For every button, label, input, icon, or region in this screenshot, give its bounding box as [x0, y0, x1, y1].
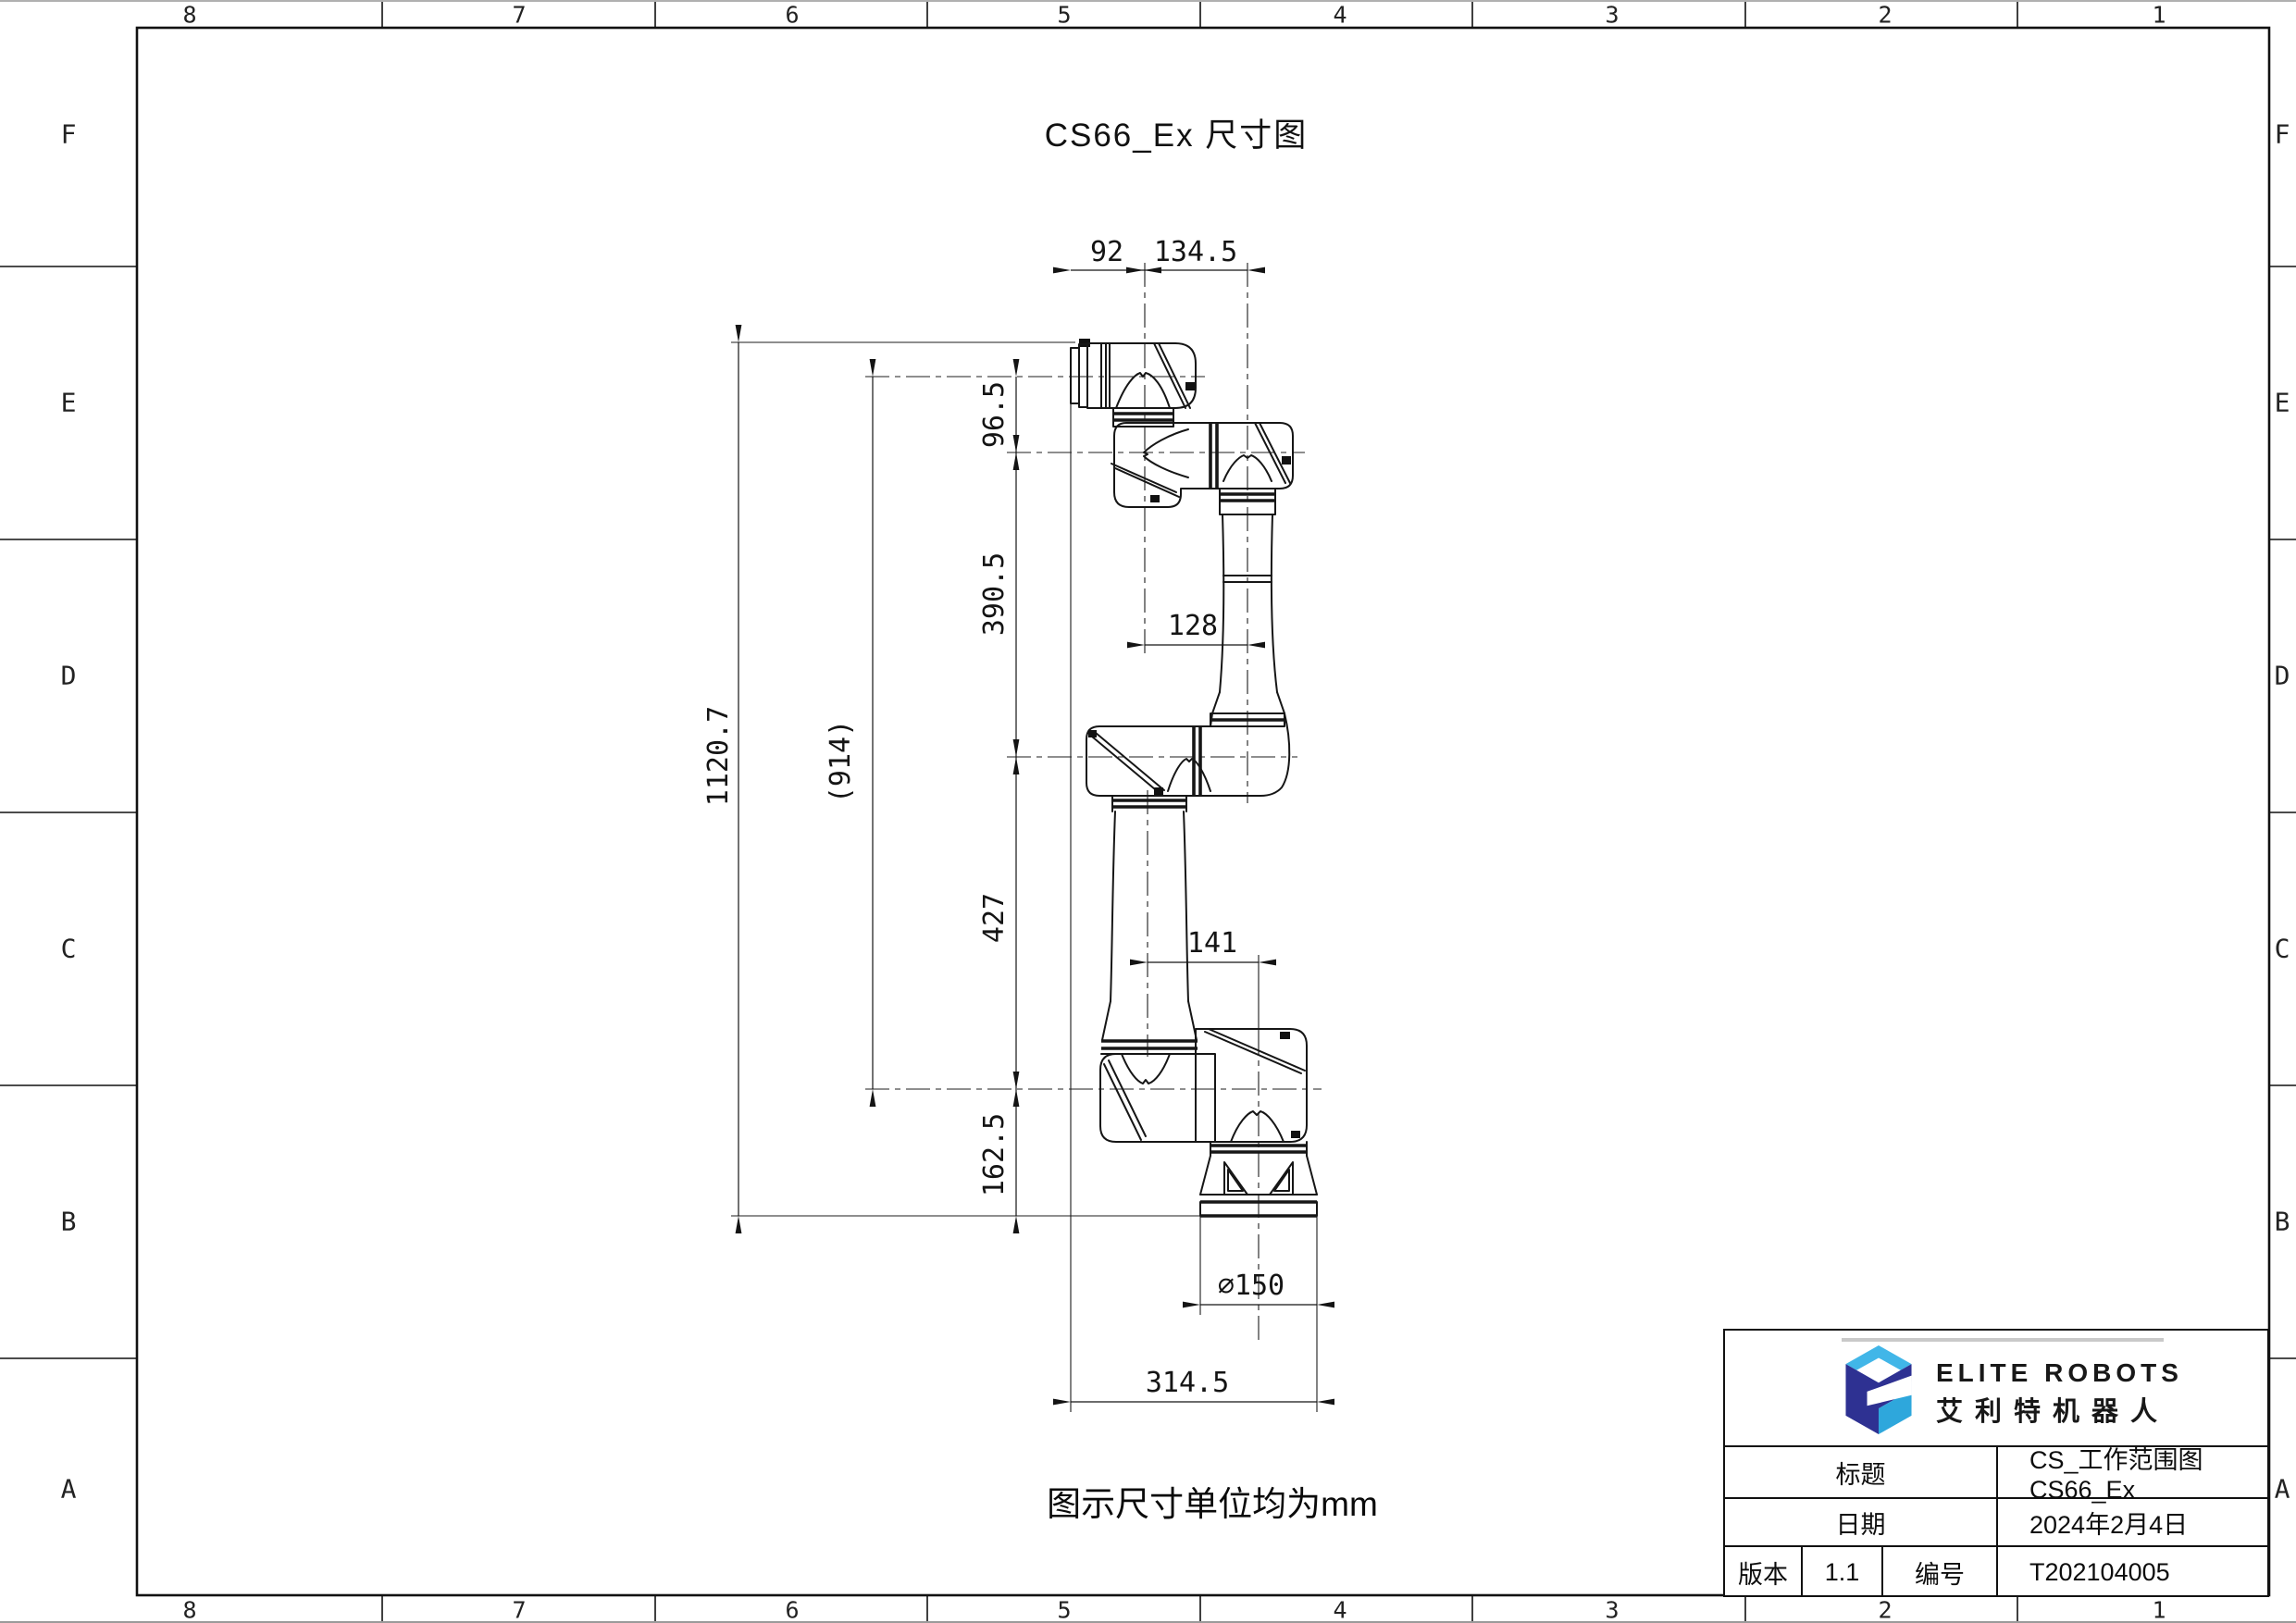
- brand-name-cn: 艾利特机器人: [1936, 1390, 2169, 1429]
- zone-col-top-4: 4: [1333, 2, 1347, 29]
- title-block-logo-row: ELITE ROBOTS 艾利特机器人: [1725, 1331, 2267, 1447]
- dim-427: 427: [978, 893, 1011, 943]
- page-title: CS66_Ex 尺寸图: [899, 109, 1454, 156]
- zone-col-top-8: 8: [182, 2, 196, 29]
- title-block: ELITE ROBOTS 艾利特机器人 标题 CS_工作范围图 CS66_Ex …: [1723, 1329, 2269, 1597]
- brand-name-en: ELITE ROBOTS: [1936, 1358, 2183, 1388]
- dim-92: 92: [1090, 236, 1123, 268]
- zone-row-left-a: A: [61, 1474, 77, 1505]
- dim-162-5: 162.5: [978, 1113, 1011, 1196]
- number-label: 编号: [1883, 1547, 1998, 1597]
- center-lines: [865, 263, 1322, 1342]
- dim-1120-7: 1120.7: [702, 706, 735, 806]
- elite-robots-logo-icon: [1843, 1345, 1914, 1434]
- zone-col-top-1: 1: [2152, 2, 2166, 29]
- zone-row-right-b: B: [2275, 1207, 2290, 1237]
- zone-row-right-a: A: [2275, 1474, 2290, 1505]
- zone-col-bottom-4: 4: [1333, 1597, 1347, 1623]
- date-row: 日期 2024年2月4日: [1725, 1499, 2267, 1547]
- zone-col-top-2: 2: [1878, 2, 1892, 29]
- dim-128: 128: [1168, 610, 1218, 642]
- zone-row-right-d: D: [2275, 661, 2290, 691]
- version-label: 版本: [1725, 1547, 1803, 1597]
- version-number-row: 版本 1.1 编号 T202104005: [1725, 1547, 2267, 1597]
- dim-141: 141: [1187, 927, 1237, 960]
- title-row: 标题 CS_工作范围图 CS66_Ex: [1725, 1447, 2267, 1499]
- zone-row-right-f: F: [2275, 119, 2290, 150]
- version-value: 1.1: [1803, 1547, 1883, 1597]
- dim-diameter-150: ⌀150: [1218, 1270, 1285, 1302]
- zone-row-left-f: F: [61, 119, 77, 150]
- zone-col-bottom-6: 6: [785, 1597, 799, 1623]
- zone-col-top-5: 5: [1057, 2, 1071, 29]
- units-note: 图示尺寸单位均为mm: [935, 1476, 1490, 1526]
- dimension-lines: [738, 270, 1317, 1402]
- dimension-labels: 92 134.5 128 141 ⌀150 314.5 1120.7 (914)…: [702, 236, 1285, 1399]
- dim-390-5: 390.5: [978, 552, 1011, 636]
- zone-row-left-e: E: [61, 388, 77, 418]
- zone-col-bottom-5: 5: [1057, 1597, 1071, 1623]
- title-value: CS_工作范围图 CS66_Ex: [1998, 1447, 2267, 1497]
- title-label: 标题: [1725, 1447, 1998, 1497]
- date-value: 2024年2月4日: [1998, 1499, 2267, 1545]
- zone-col-top-6: 6: [785, 2, 799, 29]
- zone-row-left-d: D: [61, 661, 77, 691]
- zone-col-bottom-7: 7: [512, 1597, 526, 1623]
- zone-col-bottom-8: 8: [182, 1597, 196, 1623]
- drawing-sheet: 92 134.5 128 141 ⌀150 314.5 1120.7 (914)…: [0, 0, 2296, 1623]
- zone-col-top-3: 3: [1605, 2, 1619, 29]
- zone-col-bottom-2: 2: [1878, 1597, 1892, 1623]
- extension-lines: [731, 342, 1317, 1412]
- logo-divider-rule: [1842, 1338, 2164, 1342]
- number-value: T202104005: [1998, 1547, 2267, 1597]
- zone-col-bottom-1: 1: [2152, 1597, 2166, 1623]
- zone-col-top-7: 7: [512, 2, 526, 29]
- dim-914: (914): [825, 720, 857, 803]
- dim-134-5: 134.5: [1154, 236, 1237, 268]
- dim-314-5: 314.5: [1146, 1367, 1229, 1399]
- robot-arm-outline: [1071, 339, 1317, 1216]
- zone-row-right-c: C: [2275, 934, 2290, 964]
- date-label: 日期: [1725, 1499, 1998, 1545]
- dim-96-5: 96.5: [978, 381, 1011, 448]
- zone-row-right-e: E: [2275, 388, 2290, 418]
- zone-row-left-c: C: [61, 934, 77, 964]
- zone-col-bottom-3: 3: [1605, 1597, 1619, 1623]
- zone-row-left-b: B: [61, 1207, 77, 1237]
